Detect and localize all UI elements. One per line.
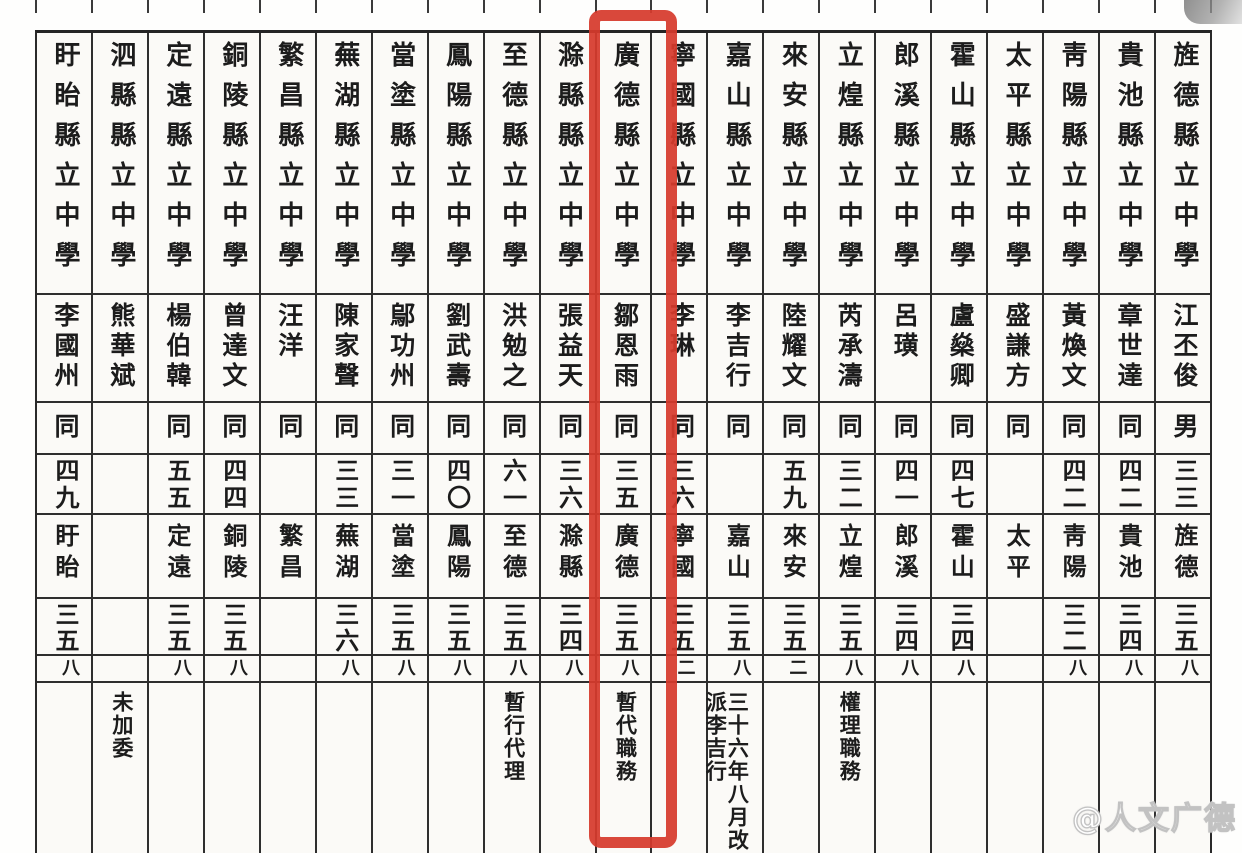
remarks-cell [205, 683, 259, 853]
age-cell: 三二 [820, 455, 874, 515]
appointment-month-cell: 八 [876, 656, 930, 683]
column-line-stub [764, 0, 820, 13]
sex-ditto-cell: 同 [541, 403, 595, 455]
age-cell: 三三 [1156, 455, 1210, 515]
school-name-cell: 立煌縣立中學 [820, 33, 874, 295]
appointment-year-cell: 三五 [1156, 599, 1210, 656]
table-column: 蕪湖縣立中學 陳家聲 同 三三 蕪湖 三六 八 [317, 33, 373, 853]
appointment-year-cell: 三五 [37, 599, 91, 656]
school-name-cell: 銅陵縣立中學 [205, 33, 259, 295]
sex-ditto-cell: 同 [652, 403, 706, 455]
appointment-year-cell: 三四 [541, 599, 595, 656]
native-place-cell: 當塗 [373, 515, 427, 599]
principal-name-cell: 洪勉之 [485, 295, 539, 403]
remarks-cell: 權理職務 [820, 683, 874, 853]
appointment-year-cell: 三五 [764, 599, 818, 656]
native-place-cell: 來安 [764, 515, 818, 599]
column-line-stub [317, 0, 373, 13]
principal-name-cell: 章世達 [1100, 295, 1154, 403]
age-cell: 四一 [876, 455, 930, 515]
native-place-cell: 滁縣 [541, 515, 595, 599]
appointment-month-cell [261, 656, 315, 683]
column-line-stub [988, 0, 1044, 13]
principal-name-cell: 李琳 [652, 295, 706, 403]
age-cell: 三六 [541, 455, 595, 515]
table-column: 旌德縣立中學 江丕俊 男 三三 旌德 三五 八 [1156, 33, 1210, 853]
principal-name-cell: 呂璜 [876, 295, 930, 403]
appointment-month-cell: 八 [541, 656, 595, 683]
remarks-cell [764, 683, 818, 853]
remarks-cell [652, 683, 706, 853]
appointment-month-cell: 二 [764, 656, 818, 683]
appointment-month-cell [93, 656, 147, 683]
age-cell [708, 455, 762, 515]
column-line-stub [708, 0, 764, 13]
column-line-stub [485, 0, 541, 13]
appointment-month-cell: 八 [317, 656, 371, 683]
appointment-month-cell: 八 [149, 656, 203, 683]
table-top-edge-stubs [35, 0, 1212, 13]
sex-ditto-cell: 同 [149, 403, 203, 455]
principal-name-cell: 張益天 [541, 295, 595, 403]
appointment-year-cell: 三二 [1044, 599, 1098, 656]
appointment-year-cell: 三五 [429, 599, 483, 656]
appointment-year-cell: 三五 [485, 599, 539, 656]
school-register-table: 盱眙縣立中學 李國州 同 四九 盱眙 三五 八 泗縣縣立中學 熊華斌 未加委 定… [35, 30, 1212, 853]
appointment-month-cell: 八 [932, 656, 986, 683]
principal-name-cell: 芮承濤 [820, 295, 874, 403]
age-cell: 三五 [597, 455, 651, 515]
school-name-cell: 定遠縣立中學 [149, 33, 203, 295]
school-name-cell: 至德縣立中學 [485, 33, 539, 295]
column-line-stub [429, 0, 485, 13]
sex-ditto-cell: 同 [317, 403, 371, 455]
age-cell: 五五 [149, 455, 203, 515]
column-line-stub [373, 0, 429, 13]
remarks-cell: 暫代職務 [597, 683, 651, 853]
table-column: 嘉山縣立中學 李吉行 同 嘉山 三五 八 三十六年八月改派李吉行 [708, 33, 764, 853]
sex-ditto-cell: 同 [597, 403, 651, 455]
school-name-cell: 旌德縣立中學 [1156, 33, 1210, 295]
age-cell: 四二 [1044, 455, 1098, 515]
age-cell: 四九 [37, 455, 91, 515]
scanned-document-page: 盱眙縣立中學 李國州 同 四九 盱眙 三五 八 泗縣縣立中學 熊華斌 未加委 定… [0, 0, 1242, 853]
principal-name-cell: 黃煥文 [1044, 295, 1098, 403]
age-cell: 四〇 [429, 455, 483, 515]
age-cell: 四二 [1100, 455, 1154, 515]
appointment-year-cell [988, 599, 1042, 656]
appointment-month-cell: 八 [597, 656, 651, 683]
sex-ditto-cell: 同 [205, 403, 259, 455]
principal-name-cell: 李國州 [37, 295, 91, 403]
watermark-text: @人文广德 [1072, 793, 1237, 838]
principal-name-cell: 江丕俊 [1156, 295, 1210, 403]
remarks-cell: 暫行代理 [485, 683, 539, 853]
age-cell: 四四 [205, 455, 259, 515]
table-column: 定遠縣立中學 楊伯韓 同 五五 定遠 三五 八 [149, 33, 205, 853]
appointment-month-cell: 八 [429, 656, 483, 683]
principal-name-cell: 陳家聲 [317, 295, 371, 403]
appointment-year-cell: 三五 [708, 599, 762, 656]
sex-ditto-cell: 同 [1100, 403, 1154, 455]
scan-corner-artifact [1184, 0, 1242, 24]
school-name-cell: 泗縣縣立中學 [93, 33, 147, 295]
age-cell [988, 455, 1042, 515]
column-line-stub [149, 0, 205, 13]
principal-name-cell: 鄔功州 [373, 295, 427, 403]
appointment-year-cell: 三五 [205, 599, 259, 656]
native-place-cell: 至德 [485, 515, 539, 599]
appointment-year-cell: 三五 [597, 599, 651, 656]
native-place-cell: 廣德 [597, 515, 651, 599]
sex-ditto-cell: 同 [932, 403, 986, 455]
principal-name-cell: 李吉行 [708, 295, 762, 403]
appointment-year-cell: 三四 [876, 599, 930, 656]
school-name-cell: 嘉山縣立中學 [708, 33, 762, 295]
table-column: 當塗縣立中學 鄔功州 同 三一 當塗 三五 八 [373, 33, 429, 853]
age-cell: 五九 [764, 455, 818, 515]
school-name-cell: 太平縣立中學 [988, 33, 1042, 295]
appointment-month-cell: 八 [1044, 656, 1098, 683]
native-place-cell: 繁昌 [261, 515, 315, 599]
school-name-cell: 蕪湖縣立中學 [317, 33, 371, 295]
appointment-month-cell: 八 [1156, 656, 1210, 683]
remarks-cell [988, 683, 1042, 853]
column-line-stub [652, 0, 708, 13]
age-cell: 三六 [652, 455, 706, 515]
sex-ditto-cell: 同 [373, 403, 427, 455]
sex-ditto-cell: 同 [1044, 403, 1098, 455]
table-column: 來安縣立中學 陸耀文 同 五九 來安 三五 二 [764, 33, 820, 853]
age-cell: 三三 [317, 455, 371, 515]
appointment-month-cell: 八 [485, 656, 539, 683]
remarks-cell: 三十六年八月改派李吉行 [708, 683, 762, 853]
principal-name-cell: 鄒恩雨 [597, 295, 651, 403]
appointment-year-cell: 三五 [820, 599, 874, 656]
sex-ditto-cell: 同 [261, 403, 315, 455]
age-cell [93, 455, 147, 515]
appointment-month-cell: 八 [708, 656, 762, 683]
principal-name-cell: 盧燊卿 [932, 295, 986, 403]
remarks-cell [37, 683, 91, 853]
appointment-year-cell: 三四 [1100, 599, 1154, 656]
school-name-cell: 霍山縣立中學 [932, 33, 986, 295]
table-column: 霍山縣立中學 盧燊卿 同 四七 霍山 三四 八 [932, 33, 988, 853]
table-column: 太平縣立中學 盛謙方 同 太平 [988, 33, 1044, 853]
table-column: 郎溪縣立中學 呂璜 同 四一 郎溪 三四 八 [876, 33, 932, 853]
native-place-cell: 蕪湖 [317, 515, 371, 599]
sex-ditto-cell: 同 [429, 403, 483, 455]
native-place-cell: 霍山 [932, 515, 986, 599]
appointment-month-cell: 八 [820, 656, 874, 683]
appointment-month-cell: 八 [1100, 656, 1154, 683]
age-cell [261, 455, 315, 515]
sex-ditto-cell: 同 [876, 403, 930, 455]
column-line-stub [541, 0, 597, 13]
column-line-stub [597, 0, 653, 13]
native-place-cell: 嘉山 [708, 515, 762, 599]
native-place-cell: 盱眙 [37, 515, 91, 599]
appointment-year-cell: 三六 [317, 599, 371, 656]
column-line-stub [205, 0, 261, 13]
table-column: 寧國縣立中學 李琳 同 三六 寧國 三五 二 [652, 33, 708, 853]
table-column: 靑陽縣立中學 黃煥文 同 四二 靑陽 三二 八 [1044, 33, 1100, 853]
remarks-cell [261, 683, 315, 853]
principal-name-cell: 陸耀文 [764, 295, 818, 403]
native-place-cell: 貴池 [1100, 515, 1154, 599]
school-name-cell: 鳳陽縣立中學 [429, 33, 483, 295]
sex-ditto-cell: 同 [988, 403, 1042, 455]
table-column: 滁縣縣立中學 張益天 同 三六 滁縣 三四 八 [541, 33, 597, 853]
column-line-stub [1044, 0, 1100, 13]
table-column: 至德縣立中學 洪勉之 同 六一 至德 三五 八 暫行代理 [485, 33, 541, 853]
column-line-stub [820, 0, 876, 13]
appointment-month-cell: 八 [373, 656, 427, 683]
column-line-stub [93, 0, 149, 13]
native-place-cell: 靑陽 [1044, 515, 1098, 599]
native-place-cell: 旌德 [1156, 515, 1210, 599]
school-name-cell: 廣德縣立中學 [597, 33, 651, 295]
native-place-cell: 立煌 [820, 515, 874, 599]
school-name-cell: 寧國縣立中學 [652, 33, 706, 295]
school-name-cell: 繁昌縣立中學 [261, 33, 315, 295]
sex-ditto-cell: 同 [485, 403, 539, 455]
principal-name-cell: 曾達文 [205, 295, 259, 403]
school-name-cell: 郎溪縣立中學 [876, 33, 930, 295]
age-cell: 三一 [373, 455, 427, 515]
school-name-cell: 貴池縣立中學 [1100, 33, 1154, 295]
sex-ditto-cell: 同 [820, 403, 874, 455]
remarks-cell [932, 683, 986, 853]
appointment-year-cell: 三五 [652, 599, 706, 656]
remarks-cell [373, 683, 427, 853]
appointment-month-cell: 八 [205, 656, 259, 683]
appointment-year-cell: 三五 [149, 599, 203, 656]
table-column: 盱眙縣立中學 李國州 同 四九 盱眙 三五 八 [37, 33, 93, 853]
column-line-stub [37, 0, 93, 13]
principal-name-cell: 汪洋 [261, 295, 315, 403]
principal-name-cell: 劉武壽 [429, 295, 483, 403]
column-line-stub [261, 0, 317, 13]
principal-name-cell: 盛謙方 [988, 295, 1042, 403]
school-name-cell: 滁縣縣立中學 [541, 33, 595, 295]
school-name-cell: 靑陽縣立中學 [1044, 33, 1098, 295]
column-line-stub [876, 0, 932, 13]
sex-ditto-cell [93, 403, 147, 455]
table-column: 銅陵縣立中學 曾達文 同 四四 銅陵 三五 八 [205, 33, 261, 853]
principal-name-cell: 楊伯韓 [149, 295, 203, 403]
appointment-year-cell [93, 599, 147, 656]
appointment-year-cell: 三四 [932, 599, 986, 656]
remarks-cell [149, 683, 203, 853]
column-line-stub [1100, 0, 1156, 13]
native-place-cell: 太平 [988, 515, 1042, 599]
table-column: 泗縣縣立中學 熊華斌 未加委 [93, 33, 149, 853]
age-cell: 六一 [485, 455, 539, 515]
remarks-cell [317, 683, 371, 853]
sex-ditto-cell: 同 [37, 403, 91, 455]
school-name-cell: 來安縣立中學 [764, 33, 818, 295]
table-column: 立煌縣立中學 芮承濤 同 三二 立煌 三五 八 權理職務 [820, 33, 876, 853]
appointment-year-cell [261, 599, 315, 656]
native-place-cell: 鳳陽 [429, 515, 483, 599]
principal-name-cell: 熊華斌 [93, 295, 147, 403]
native-place-cell: 定遠 [149, 515, 203, 599]
remarks-cell [541, 683, 595, 853]
appointment-year-cell: 三五 [373, 599, 427, 656]
sex-ditto-cell: 同 [764, 403, 818, 455]
table-column: 貴池縣立中學 章世達 同 四二 貴池 三四 八 [1100, 33, 1156, 853]
school-name-cell: 當塗縣立中學 [373, 33, 427, 295]
table-column: 鳳陽縣立中學 劉武壽 同 四〇 鳳陽 三五 八 [429, 33, 485, 853]
remarks-cell [876, 683, 930, 853]
appointment-month-cell: 二 [652, 656, 706, 683]
remarks-cell [429, 683, 483, 853]
table-column: 廣德縣立中學 鄒恩雨 同 三五 廣德 三五 八 暫代職務 [597, 33, 653, 853]
appointment-month-cell [988, 656, 1042, 683]
age-cell: 四七 [932, 455, 986, 515]
sex-ditto-cell: 男 [1156, 403, 1210, 455]
native-place-cell: 寧國 [652, 515, 706, 599]
remarks-cell: 未加委 [93, 683, 147, 853]
native-place-cell: 銅陵 [205, 515, 259, 599]
native-place-cell [93, 515, 147, 599]
column-line-stub [932, 0, 988, 13]
school-name-cell: 盱眙縣立中學 [37, 33, 91, 295]
sex-ditto-cell: 同 [708, 403, 762, 455]
native-place-cell: 郎溪 [876, 515, 930, 599]
table-column: 繁昌縣立中學 汪洋 同 繁昌 [261, 33, 317, 853]
appointment-month-cell: 八 [37, 656, 91, 683]
